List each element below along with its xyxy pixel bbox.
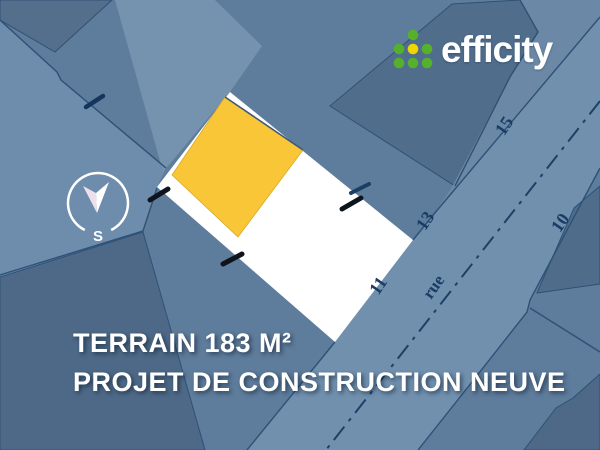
logo-dots-icon [392, 26, 434, 72]
map-screenshot: 15 13 11 10 rue S efficity TERRAIN 183 M… [0, 0, 600, 450]
brand-logo: efficity [392, 26, 552, 72]
terrain-area-title: TERRAIN 183 M² [73, 330, 566, 357]
caption: TERRAIN 183 M² PROJET DE CONSTRUCTION NE… [73, 330, 566, 396]
project-title: PROJET DE CONSTRUCTION NEUVE [73, 369, 566, 396]
compass-south-label: S [93, 228, 103, 245]
brand-name: efficity [441, 31, 552, 68]
